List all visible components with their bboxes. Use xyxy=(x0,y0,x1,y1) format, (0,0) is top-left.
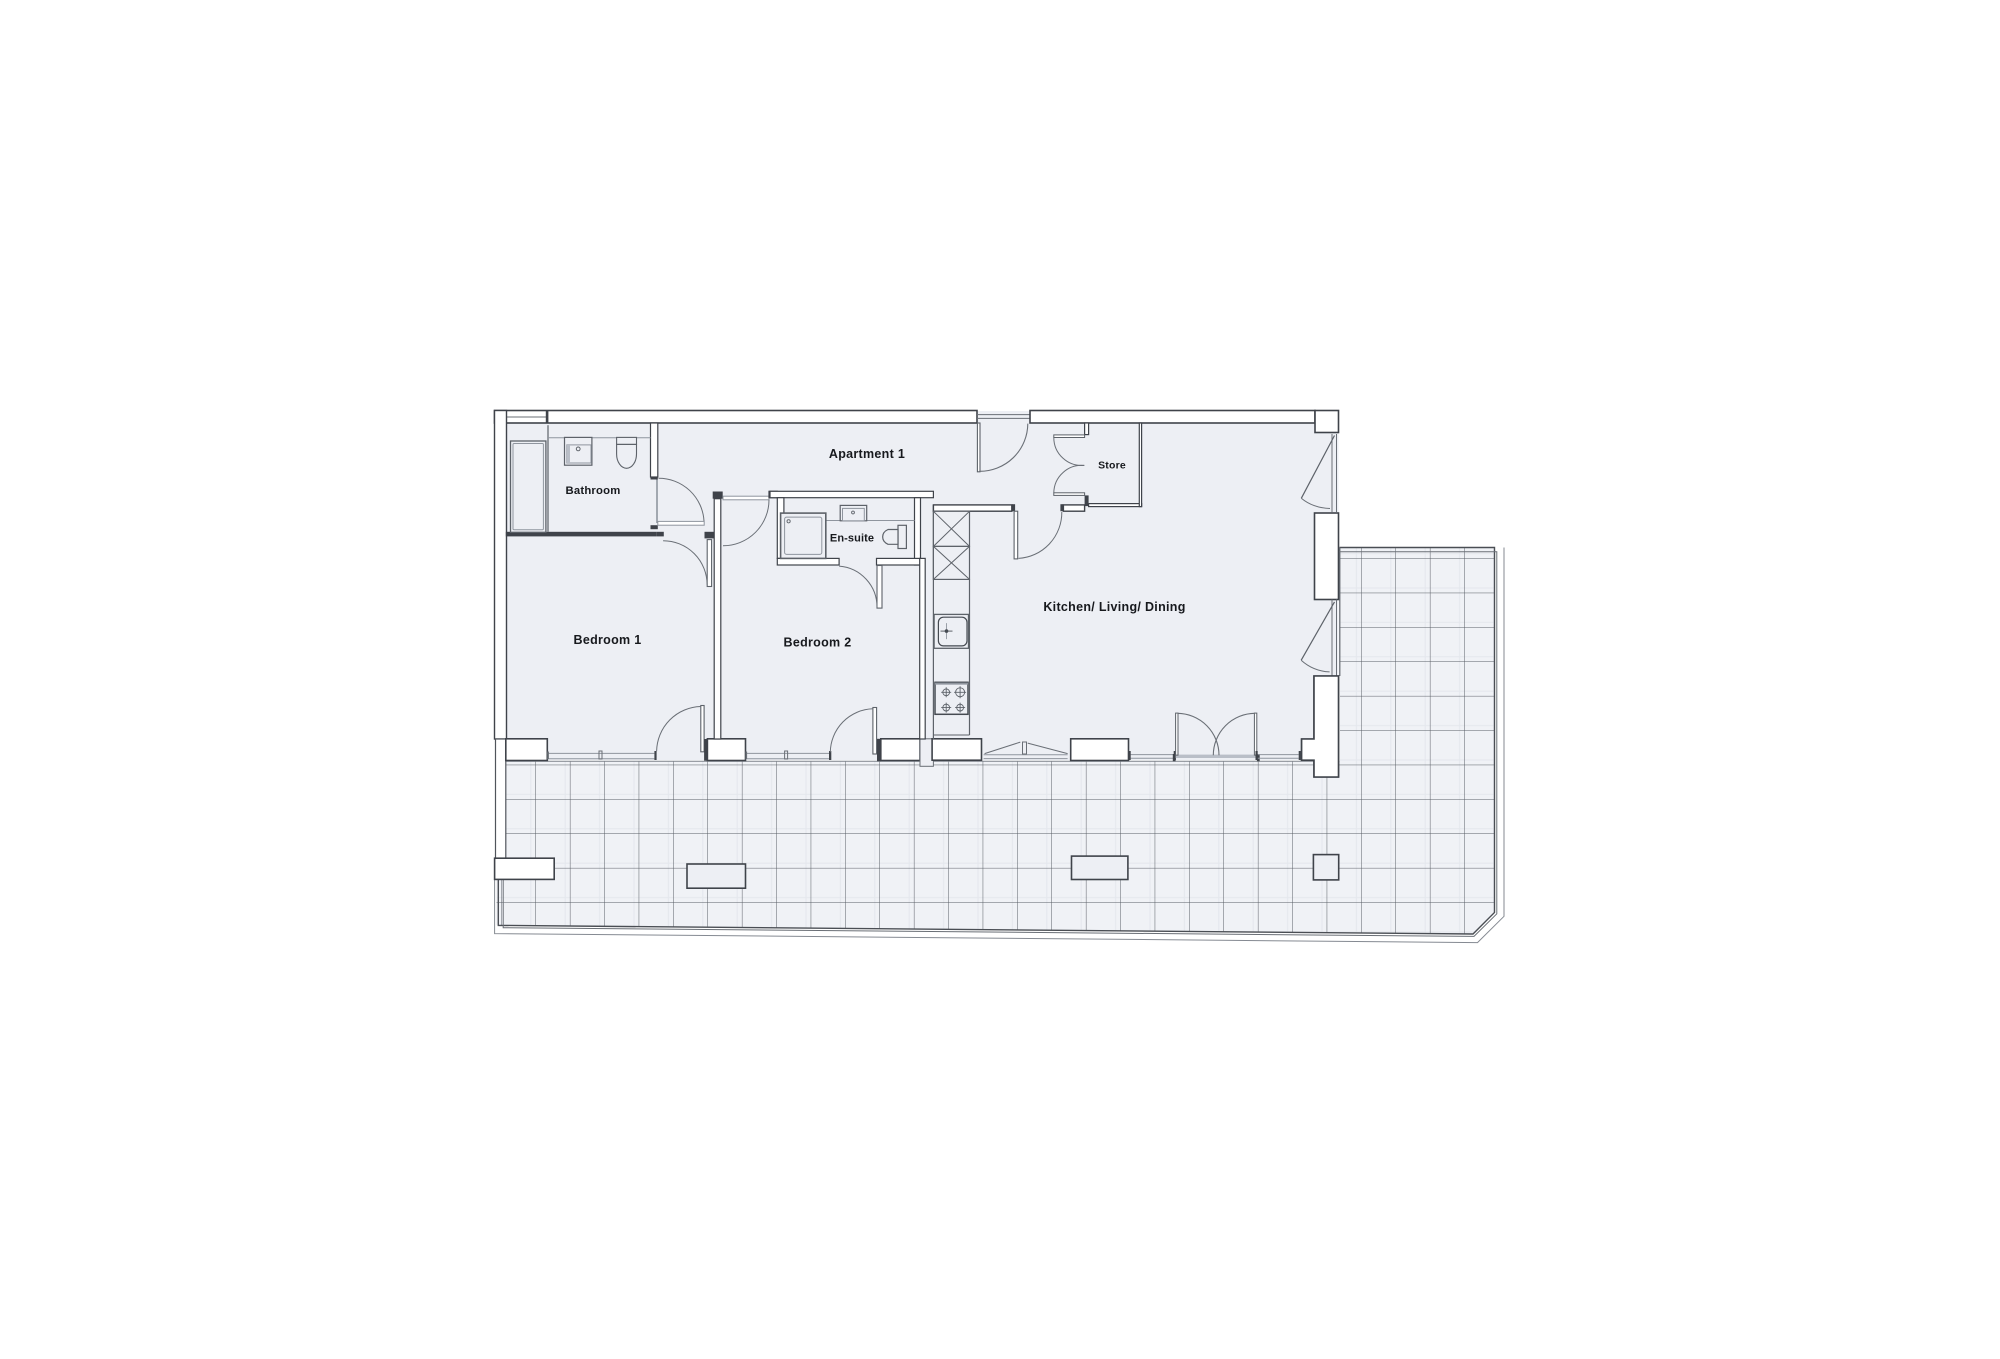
svg-text:Bathroom: Bathroom xyxy=(566,485,621,497)
svg-text:Kitchen/ Living/ Dining: Kitchen/ Living/ Dining xyxy=(1043,600,1185,614)
svg-text:En-suite: En-suite xyxy=(830,533,874,545)
svg-text:Bedroom 2: Bedroom 2 xyxy=(784,636,852,650)
svg-text:Bedroom 1: Bedroom 1 xyxy=(574,633,642,647)
svg-text:Apartment 1: Apartment 1 xyxy=(829,447,905,461)
svg-text:Store: Store xyxy=(1098,460,1126,472)
